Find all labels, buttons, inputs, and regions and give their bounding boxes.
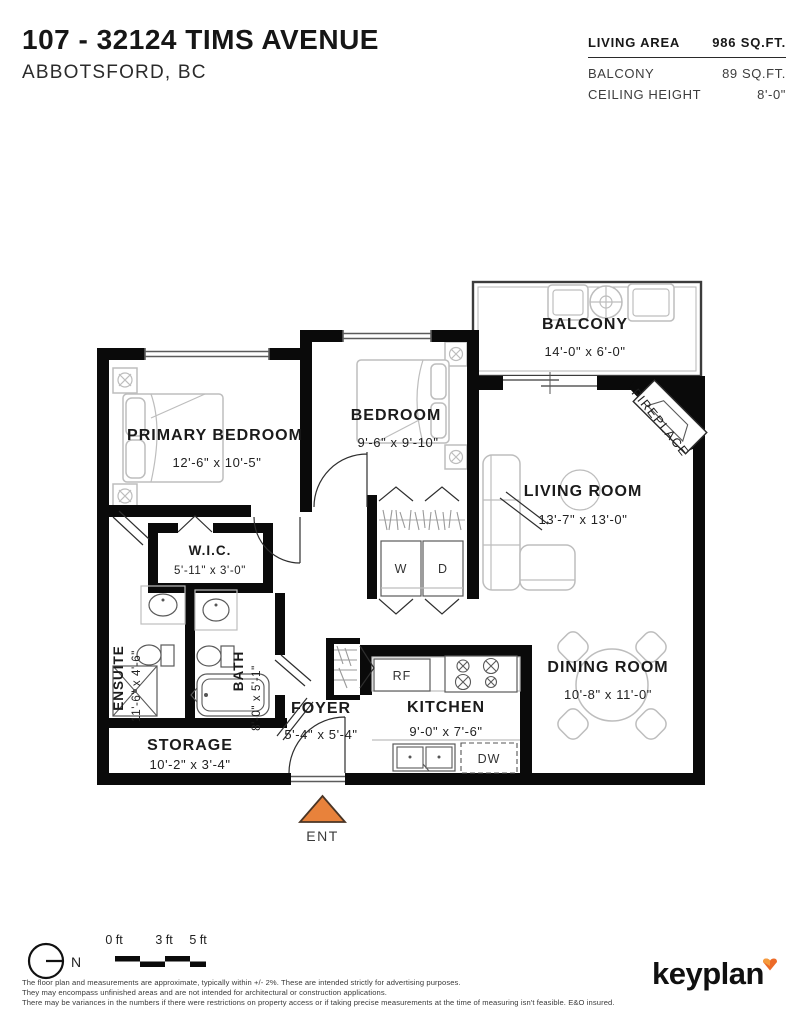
dining-set <box>555 629 670 743</box>
disclaimer-line-1: The floor plan and measurements are appr… <box>22 978 615 988</box>
ensuite-name: ENSUITE <box>111 645 126 711</box>
floorplan-drawing: FIREPLACE W D RF <box>93 268 713 843</box>
foyer-name: FOYER <box>291 700 351 717</box>
stat-ceiling: CEILING HEIGHT 8'-0" <box>588 84 786 105</box>
brand-mark-icon <box>762 958 778 972</box>
scale-bar-steps <box>115 956 206 967</box>
entry-label: ENT <box>306 828 339 843</box>
bath-name: BATH <box>231 651 246 692</box>
storage-dims: 10'-2" x 3'-4" <box>149 757 230 772</box>
stat-balcony: BALCONY 89 SQ.FT. <box>588 63 786 84</box>
stat-living-area-value: 986 SQ.FT. <box>712 35 786 50</box>
entry-marker: ENT <box>300 796 345 843</box>
ensuite-dims: 11'-6" x 4'-6" <box>131 650 143 722</box>
kitchen-name: KITCHEN <box>407 699 485 716</box>
washer-label: W <box>395 562 408 576</box>
floorplan-page: 107 - 32124 TIMS AVENUE ABBOTSFORD, BC L… <box>0 0 800 1036</box>
disclaimer-line-2: They may encompass unfinished areas and … <box>22 988 615 998</box>
stat-ceiling-label: CEILING HEIGHT <box>588 87 701 102</box>
stats-divider <box>588 57 786 58</box>
page-subtitle: ABBOTSFORD, BC <box>22 62 379 84</box>
disclaimer: The floor plan and measurements are appr… <box>22 978 615 1008</box>
scale-bar: 0 ft 3 ft 5 ft <box>100 930 230 979</box>
brand-wordmark: keyplan <box>652 956 764 991</box>
scale-tick-3: 3 ft <box>155 933 173 947</box>
foyer-dims: 5'-4" x 5'-4" <box>284 727 357 742</box>
dining-room-name: DINING ROOM <box>547 659 668 676</box>
area-stats: LIVING AREA 986 SQ.FT. BALCONY 89 SQ.FT.… <box>588 32 786 105</box>
stat-ceiling-value: 8'-0" <box>757 87 786 102</box>
wic-name: W.I.C. <box>189 543 232 558</box>
stat-balcony-label: BALCONY <box>588 66 654 81</box>
stat-living-area: LIVING AREA 986 SQ.FT. <box>588 32 786 57</box>
bath-dims: 8'-0" x 5'-1" <box>251 665 263 731</box>
stat-balcony-value: 89 SQ.FT. <box>722 66 786 81</box>
scale-tick-0: 0 ft <box>105 933 123 947</box>
primary-bedroom-name: PRIMARY BEDROOM <box>127 427 303 444</box>
disclaimer-line-3: There may be variances in the numbers if… <box>22 998 615 1008</box>
laundry-closet: W D <box>379 510 465 596</box>
header: 107 - 32124 TIMS AVENUE ABBOTSFORD, BC <box>22 24 379 84</box>
dryer-label: D <box>438 562 448 576</box>
page-title: 107 - 32124 TIMS AVENUE <box>22 24 379 56</box>
living-room-dims: 13'-7" x 13'-0" <box>539 512 628 527</box>
wic-dims: 5'-11" x 3'-0" <box>174 565 246 577</box>
stat-living-area-label: LIVING AREA <box>588 35 680 50</box>
fridge-label: RF <box>393 669 412 683</box>
balcony-name: BALCONY <box>542 316 628 333</box>
kitchen-dims: 9'-0" x 7'-6" <box>409 724 482 739</box>
balcony-dims: 14'-0" x 6'-0" <box>544 344 625 359</box>
north-label: N <box>71 954 82 970</box>
bedroom-name: BEDROOM <box>351 407 442 424</box>
primary-bedroom-dims: 12'-6" x 10'-5" <box>173 455 262 470</box>
dishwasher-label: DW <box>478 752 501 766</box>
scale-tick-5: 5 ft <box>189 933 207 947</box>
dining-room-dims: 10'-8" x 11'-0" <box>564 687 652 702</box>
bedroom-dims: 9'-6" x 9'-10" <box>357 435 438 450</box>
storage-name: STORAGE <box>147 737 233 754</box>
brand-logo: keyplan <box>652 956 764 992</box>
living-room-name: LIVING ROOM <box>524 483 643 500</box>
